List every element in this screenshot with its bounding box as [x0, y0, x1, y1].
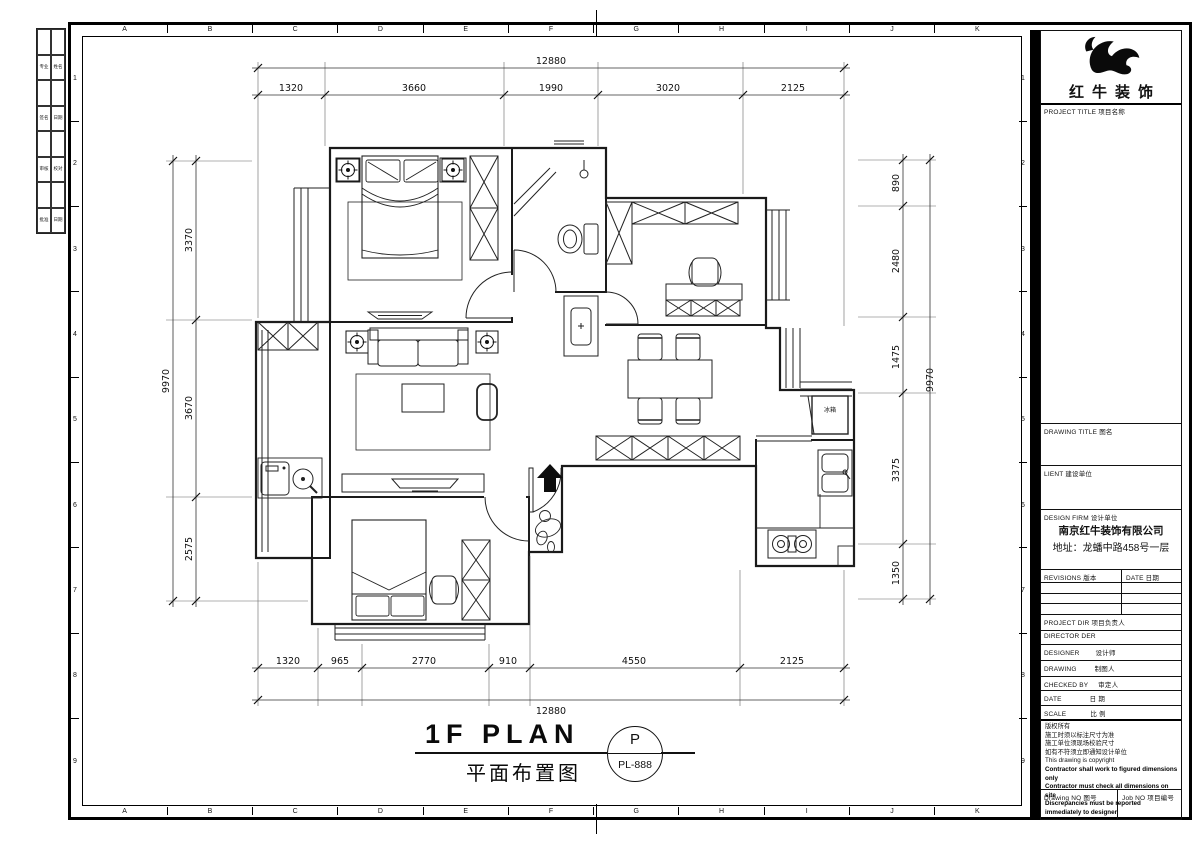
revisions-label: REVISIONS 版本 — [1044, 572, 1097, 582]
title-block: 红牛装饰 PROJECT TITLE 项目名称 DRAWING TITLE 图名… — [1040, 30, 1182, 820]
divider — [1041, 103, 1181, 105]
person-figure — [533, 511, 563, 553]
doors — [466, 250, 812, 541]
bedroom-2 — [352, 520, 490, 620]
label-en: DRAWING TITLE — [1044, 429, 1097, 436]
stove — [768, 530, 816, 558]
badge-code: PL-888 — [608, 753, 662, 778]
divider — [1041, 676, 1181, 677]
copyright-line: 施工单位须现场校验尺寸 — [1045, 740, 1179, 749]
dining-chairs — [638, 334, 700, 424]
blanket-folds — [362, 188, 438, 255]
desk-chair — [689, 258, 721, 286]
blanket-folds — [352, 572, 426, 594]
label-en: DRAWING — [1044, 666, 1077, 673]
label-zh: 图号 — [1083, 795, 1096, 802]
dim-label: 1320 — [279, 83, 303, 94]
label-en: DIRECTOR DER — [1044, 633, 1096, 640]
ceiling-light-icon — [476, 331, 498, 353]
scale-label: SCALE 比 例 — [1044, 708, 1106, 718]
ceiling-light-icon — [346, 331, 368, 353]
divider — [1041, 509, 1181, 510]
dim-label: 1990 — [539, 83, 563, 94]
washbasin — [564, 296, 598, 356]
dim-label: 965 — [331, 656, 349, 667]
divider — [1041, 660, 1181, 661]
title-rule — [661, 752, 695, 754]
plan-title-en: 1F PLAN — [425, 719, 580, 750]
divider — [1041, 614, 1181, 615]
label-en: DATE — [1044, 696, 1062, 703]
title-rule — [415, 752, 607, 754]
kitchen-sink — [818, 450, 852, 496]
label-zh: 版本 — [1083, 575, 1096, 582]
label-en: LIENT — [1044, 471, 1063, 478]
divider — [1041, 705, 1181, 706]
rug — [348, 202, 462, 280]
dim-label: 2575 — [184, 537, 195, 561]
divider — [1041, 582, 1181, 583]
dim-label: 2770 — [412, 656, 436, 667]
shower-screen — [514, 168, 556, 216]
redbull-logo-icon — [1079, 33, 1143, 81]
drawing-title-label: DRAWING TITLE 图名 — [1044, 426, 1113, 436]
divider — [1041, 644, 1181, 645]
copyright-line: Contractor shall work to figured dimensi… — [1045, 766, 1179, 783]
dim-label: 9970 — [925, 368, 936, 392]
entry-arrow-icon — [537, 464, 563, 492]
wardrobe — [462, 540, 490, 620]
dim-label: 1350 — [891, 561, 902, 585]
date-label: DATE 日 期 — [1044, 693, 1105, 703]
curtain-pelmet — [368, 312, 432, 319]
label-zh: 设计单位 — [1091, 515, 1118, 522]
copyright-block: 版权所有 施工时须以标注尺寸为准 施工单位须现场校验尺寸 如有不符须立即通知设计… — [1045, 723, 1179, 818]
divider — [1041, 789, 1181, 790]
balcony-cabinet — [258, 322, 318, 350]
counter-edge — [756, 494, 854, 528]
label-zh: 比 例 — [1090, 711, 1105, 718]
label-en: DESIGN FIRM — [1044, 515, 1089, 522]
label-en: DATE — [1126, 575, 1144, 582]
dimensions-left: 3370 3670 2575 9970 — [161, 155, 200, 607]
label-zh: 日 期 — [1090, 696, 1105, 703]
counter-end-panel — [838, 546, 854, 566]
project-title-label: PROJECT TITLE 项目名称 — [1044, 106, 1125, 116]
dim-label: 3670 — [184, 396, 195, 420]
dimensions-bottom: 1320 965 2770 910 4550 2125 12880 — [252, 656, 850, 717]
label-zh: 项目负责人 — [1091, 620, 1125, 627]
dim-label: 4550 — [622, 656, 646, 667]
design-firm-company: 南京红牛装饰有限公司 — [1041, 523, 1181, 538]
drawing-no-label: Drawing NO 图号 — [1044, 792, 1097, 802]
sofa — [368, 328, 468, 366]
divider — [1041, 593, 1181, 594]
fridge-label: 冰箱 — [824, 406, 836, 414]
washing-machine — [261, 462, 289, 495]
coffee-table — [402, 384, 444, 412]
divider — [1121, 569, 1122, 614]
extension-lines — [166, 62, 936, 706]
ceiling-light-icon — [442, 159, 464, 181]
label-en: REVISIONS — [1044, 575, 1081, 582]
label-zh: 项目名称 — [1098, 109, 1125, 116]
divider — [1041, 603, 1181, 604]
dim-label: 12880 — [536, 56, 566, 67]
copyright-line: This drawing is copyright — [1045, 757, 1179, 766]
design-firm-address: 地址：龙蟠中路458号一层 — [1041, 539, 1181, 554]
drawing-sheet: ABCDEFGHIJK ABCDEFGHIJK 123456789 123456… — [0, 0, 1200, 844]
dim-label: 9970 — [161, 369, 172, 393]
wardrobe — [470, 156, 498, 260]
dim-label: 3370 — [184, 228, 195, 252]
label-zh: 设计师 — [1096, 650, 1116, 657]
label-zh: 审定人 — [1098, 682, 1118, 689]
copyright-line: 如有不符须立即通知设计单位 — [1045, 749, 1179, 758]
fridge: 冰箱 — [808, 396, 848, 434]
label-en: DESIGNER — [1044, 650, 1080, 657]
drawing-by-label: DRAWING 制图人 — [1044, 663, 1115, 673]
dim-label: 3375 — [891, 458, 902, 482]
toilet — [558, 224, 598, 254]
label-en: SCALE — [1044, 711, 1066, 718]
bathroom — [514, 160, 598, 254]
designer-label: DESIGNER 设计师 — [1044, 647, 1116, 657]
divider — [1041, 690, 1181, 691]
project-dir-label: PROJECT DIR 项目负责人 — [1044, 617, 1125, 627]
label-zh: 日期 — [1146, 575, 1159, 582]
tv-console — [342, 474, 484, 492]
divider — [1041, 465, 1181, 466]
divider — [1117, 789, 1118, 819]
label-zh: 建设单位 — [1065, 471, 1092, 478]
drawing-number-badge: P PL-888 — [607, 726, 663, 782]
dim-label: 3020 — [656, 83, 680, 94]
dimensions-right: 890 2480 1475 3375 1350 9970 — [891, 154, 936, 605]
ceiling-light-icon — [337, 159, 359, 181]
copyright-line: Discrepancies must be reported immediate… — [1045, 800, 1179, 817]
low-cabinet — [666, 300, 740, 316]
divider — [1041, 630, 1181, 631]
chair — [430, 576, 459, 604]
dim-label: 2480 — [891, 249, 902, 273]
label-zh: 项目编号 — [1147, 795, 1174, 802]
dimensions-top: 12880 1320 3660 1990 3020 2125 — [252, 56, 850, 99]
divider — [1041, 719, 1181, 721]
dim-label: 890 — [891, 174, 902, 192]
dim-label: 3660 — [402, 83, 426, 94]
copyright-line: 施工时须以标注尺寸为准 — [1045, 732, 1179, 741]
brand-name: 红牛装饰 — [1041, 81, 1181, 102]
dim-label: 2125 — [781, 83, 805, 94]
director-label: DIRECTOR DER — [1044, 633, 1096, 640]
laundry-sink — [293, 469, 317, 493]
dim-label: 1320 — [276, 656, 300, 667]
dim-label: 910 — [499, 656, 517, 667]
badge-letter: P — [608, 727, 662, 753]
label-en: Job NO — [1122, 795, 1145, 802]
living-room — [342, 328, 498, 492]
label-en: Drawing NO — [1044, 795, 1081, 802]
sideboard — [596, 436, 740, 460]
copyright-line: 版权所有 — [1045, 723, 1179, 732]
armchair — [477, 384, 497, 420]
dim-label: 1475 — [891, 345, 902, 369]
shower-head-icon — [580, 160, 588, 178]
dining-table — [628, 360, 712, 398]
floor-plan: 冰箱 — [0, 0, 1200, 844]
kitchen: 冰箱 — [756, 396, 854, 566]
pillows — [356, 596, 424, 616]
wardrobe-l-shape — [606, 202, 738, 264]
date-col-label: DATE 日期 — [1126, 572, 1159, 582]
badge-divider — [608, 753, 662, 754]
dining-area — [596, 334, 740, 460]
dim-label: 2125 — [780, 656, 804, 667]
plan-title-zh: 平面布置图 — [466, 757, 581, 786]
master-bedroom — [336, 156, 498, 319]
pillows — [366, 160, 438, 182]
divider — [1041, 423, 1181, 424]
checked-by-label: CHECKED BY 审定人 — [1044, 679, 1118, 689]
label-en: PROJECT TITLE — [1044, 109, 1096, 116]
design-firm-label: DESIGN FIRM 设计单位 — [1044, 512, 1118, 522]
label-en: PROJECT DIR — [1044, 620, 1089, 627]
job-no-label: Job NO 项目编号 — [1122, 792, 1174, 802]
entry — [533, 464, 563, 553]
label-zh: 图名 — [1099, 429, 1112, 436]
label-zh: 制图人 — [1095, 666, 1115, 673]
client-label: LIENT 建设单位 — [1044, 468, 1092, 478]
label-en: CHECKED BY — [1044, 682, 1088, 689]
exterior-walls — [256, 148, 854, 624]
divider — [1041, 569, 1181, 570]
dim-label: 12880 — [536, 706, 566, 717]
